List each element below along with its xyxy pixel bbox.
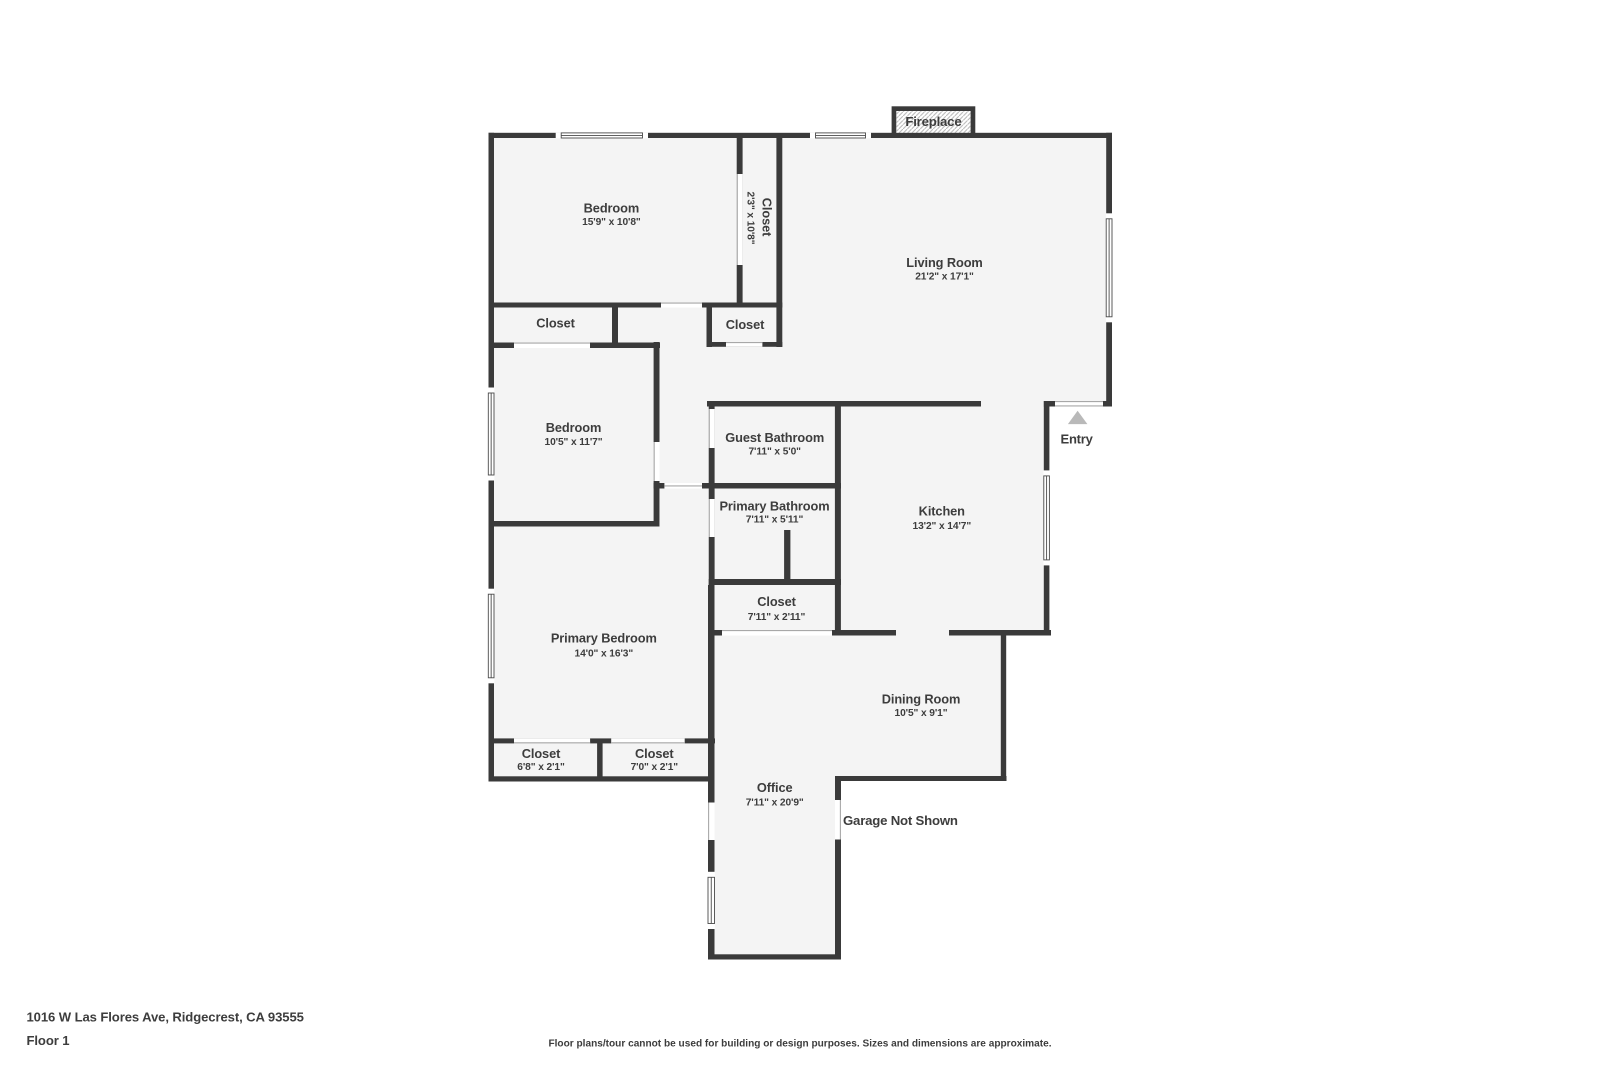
svg-text:Kitchen: Kitchen [919, 504, 966, 519]
svg-text:Closet: Closet [726, 317, 765, 332]
svg-text:7'11" x 2'11": 7'11" x 2'11" [748, 612, 806, 623]
svg-text:Closet: Closet [635, 746, 674, 761]
svg-text:14'0" x 16'3": 14'0" x 16'3" [575, 649, 634, 660]
svg-text:21'2" x 17'1": 21'2" x 17'1" [915, 271, 974, 282]
svg-text:Primary Bathroom: Primary Bathroom [719, 499, 829, 514]
svg-text:Garage Not Shown: Garage Not Shown [843, 813, 958, 828]
svg-text:7'11" x 20'9": 7'11" x 20'9" [746, 797, 804, 808]
svg-text:Entry: Entry [1060, 432, 1093, 447]
svg-text:6'8" x 2'1": 6'8" x 2'1" [517, 762, 565, 773]
svg-text:1016 W Las Flores Ave, Ridgecr: 1016 W Las Flores Ave, Ridgecrest, CA 93… [27, 1010, 304, 1025]
svg-text:13'2" x 14'7": 13'2" x 14'7" [913, 521, 972, 532]
svg-text:Office: Office [757, 780, 793, 795]
svg-text:15'9" x 10'8": 15'9" x 10'8" [582, 217, 641, 228]
svg-text:7'0" x 2'1": 7'0" x 2'1" [631, 762, 679, 773]
svg-text:Guest Bathroom: Guest Bathroom [725, 430, 824, 445]
svg-text:Fireplace: Fireplace [905, 114, 961, 129]
svg-text:10'5" x 11'7": 10'5" x 11'7" [545, 437, 603, 448]
svg-text:7'11" x 5'0": 7'11" x 5'0" [748, 447, 801, 458]
svg-text:Closet: Closet [757, 594, 796, 609]
svg-text:Floor 1: Floor 1 [27, 1033, 70, 1048]
svg-text:2'3" x 10'8": 2'3" x 10'8" [744, 192, 755, 245]
svg-text:Bedroom: Bedroom [584, 201, 639, 216]
svg-text:Floor plans/tour cannot be use: Floor plans/tour cannot be used for buil… [548, 1038, 1051, 1049]
svg-text:Living Room: Living Room [906, 255, 982, 270]
svg-text:Primary Bedroom: Primary Bedroom [551, 631, 657, 646]
svg-text:Closet: Closet [522, 746, 561, 761]
svg-text:Dining Room: Dining Room [882, 691, 961, 706]
svg-text:Bedroom: Bedroom [546, 420, 601, 435]
svg-text:Closet: Closet [536, 316, 575, 331]
svg-text:Closet: Closet [760, 198, 775, 237]
svg-text:7'11" x 5'11": 7'11" x 5'11" [746, 515, 804, 526]
svg-text:10'5" x 9'1": 10'5" x 9'1" [895, 708, 948, 719]
